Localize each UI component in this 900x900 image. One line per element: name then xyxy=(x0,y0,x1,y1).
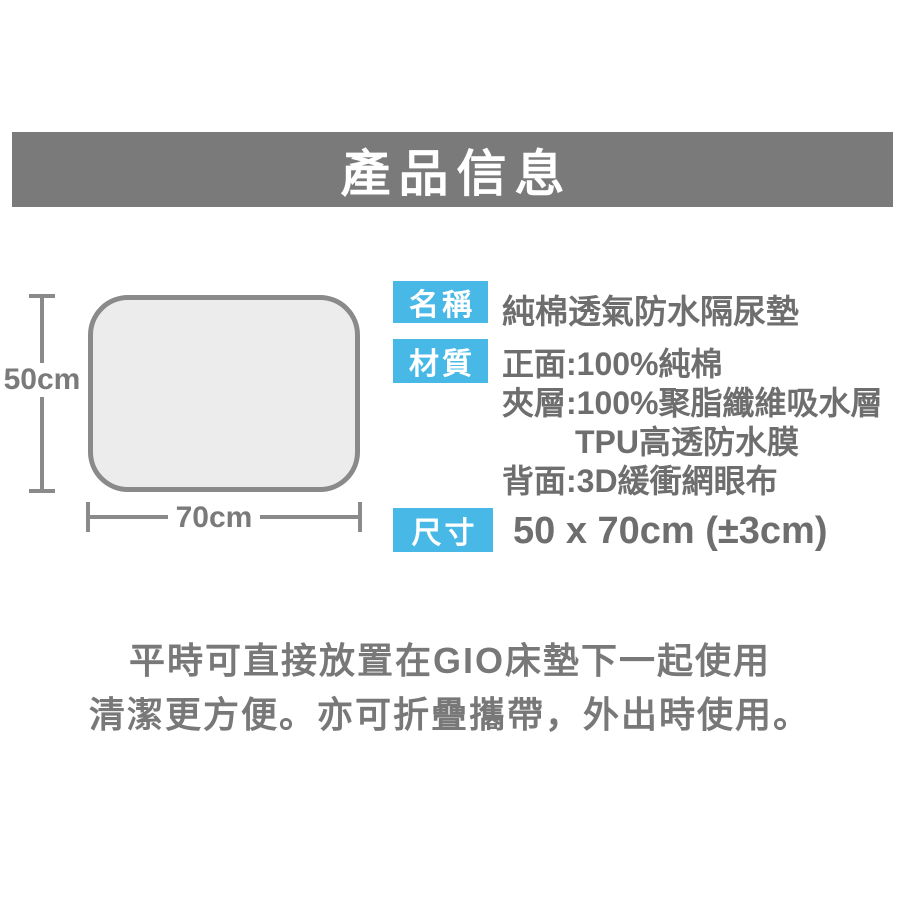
material-line-tpu: TPU高透防水膜 xyxy=(502,423,883,462)
usage-note-line-1: 平時可直接放置在GIO床墊下一起使用 xyxy=(0,634,900,688)
height-label: 50cm xyxy=(2,363,82,397)
height-dimension-cap-bottom xyxy=(29,489,55,493)
page-title: 產品信息 xyxy=(333,134,573,206)
spec-label-material: 材質 xyxy=(393,339,488,383)
spec-value-size: 50 x 70cm (±3cm) xyxy=(513,510,827,553)
product-info-page: 產品信息 50cm 70cm 名稱 純棉透氣防水隔尿墊 材質 正面:100%純棉… xyxy=(0,0,900,900)
spec-value-material: 正面:100%純棉 夾層:100%聚脂纖維吸水層 TPU高透防水膜 背面:3D緩… xyxy=(502,345,883,501)
width-dimension-cap-right xyxy=(358,502,362,532)
height-dimension-cap-top xyxy=(29,294,55,298)
usage-note-line-2: 清潔更方便。亦可折疊攜帶，外出時使用。 xyxy=(0,688,900,742)
mat-shape xyxy=(88,295,360,492)
material-line-middle: 夾層:100%聚脂纖維吸水層 xyxy=(502,384,883,423)
usage-note: 平時可直接放置在GIO床墊下一起使用 清潔更方便。亦可折疊攜帶，外出時使用。 xyxy=(0,634,900,742)
width-dimension-cap-left xyxy=(86,502,90,532)
material-line-back: 背面:3D緩衝網眼布 xyxy=(502,462,883,501)
product-info-banner: 產品信息 xyxy=(12,132,893,207)
spec-value-name: 純棉透氣防水隔尿墊 xyxy=(502,285,799,333)
width-label: 70cm xyxy=(168,501,260,535)
spec-label-size: 尺寸 xyxy=(393,508,493,552)
material-line-front: 正面:100%純棉 xyxy=(502,345,883,384)
spec-label-name: 名稱 xyxy=(393,281,488,323)
